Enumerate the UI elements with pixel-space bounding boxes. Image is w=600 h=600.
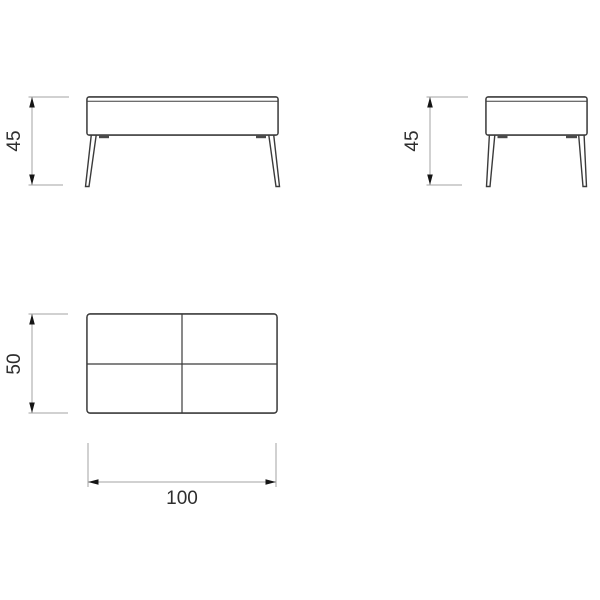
top-view <box>87 314 277 413</box>
furniture-dimension-drawing: 45 45 <box>0 0 600 600</box>
front-left-leg-bracket <box>99 135 109 138</box>
side-height-label: 45 <box>402 130 423 151</box>
side-view <box>486 97 587 187</box>
front-height-dimension: 45 <box>4 97 69 185</box>
side-right-leg-bracket <box>566 135 577 138</box>
depth-dim-arrow-up-icon <box>29 314 35 325</box>
side-right-leg <box>579 133 587 187</box>
plan-depth-label: 50 <box>4 353 25 374</box>
front-right-leg-bracket <box>256 135 266 138</box>
front-left-leg <box>86 133 97 187</box>
side-left-leg-bracket <box>498 135 508 138</box>
side-dim-arrow-down-icon <box>427 175 433 186</box>
width-dim-arrow-left-icon <box>88 479 99 485</box>
front-right-leg <box>269 133 280 187</box>
width-dim-arrow-right-icon <box>266 479 277 485</box>
plan-width-dimension: 100 <box>88 443 276 509</box>
side-left-leg <box>487 133 496 187</box>
front-dim-arrow-up-icon <box>29 97 35 108</box>
side-height-dimension: 45 <box>402 97 468 185</box>
front-tabletop-outline <box>87 97 278 135</box>
technical-drawing-page: 45 45 <box>0 0 600 600</box>
side-dim-arrow-up-icon <box>427 97 433 108</box>
front-dim-arrow-down-icon <box>29 175 35 186</box>
front-height-label: 45 <box>4 130 25 151</box>
plan-width-label: 100 <box>166 488 198 509</box>
side-tabletop-outline <box>486 97 587 135</box>
plan-depth-dimension: 50 <box>4 314 68 413</box>
front-view <box>86 97 280 187</box>
depth-dim-arrow-down-icon <box>29 403 35 414</box>
